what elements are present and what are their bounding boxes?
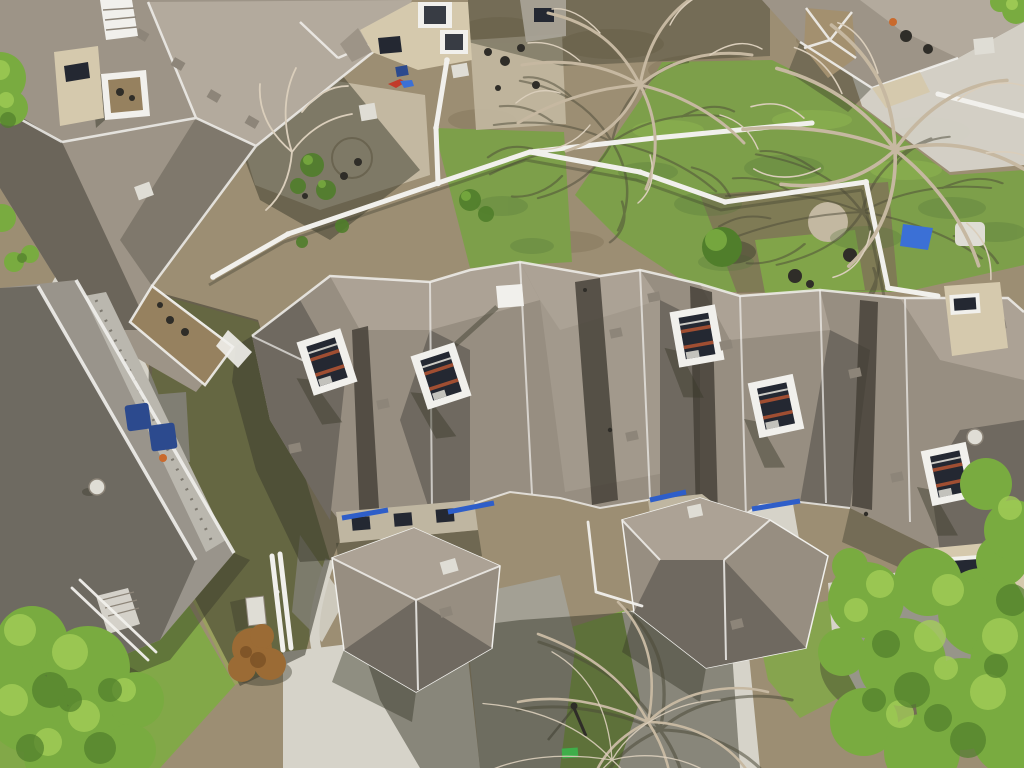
trash-bin-2 xyxy=(148,422,177,451)
stairs-top xyxy=(100,0,138,40)
dome-vent xyxy=(89,479,105,495)
utility-box xyxy=(246,596,267,626)
traffic-cone xyxy=(159,454,167,462)
white-vent-box xyxy=(496,284,524,308)
bay-window-1 xyxy=(418,2,452,28)
white-box-patio xyxy=(973,37,995,55)
round-vent xyxy=(967,429,983,445)
terracotta-pot xyxy=(889,18,897,26)
structure-top-center xyxy=(520,0,566,42)
blue-tarp xyxy=(900,224,933,250)
bay-window-2 xyxy=(440,30,468,54)
window-dark xyxy=(378,36,402,54)
wall-right-upper xyxy=(944,282,1008,356)
ac-unit-2 xyxy=(451,63,469,79)
ac-unit-1 xyxy=(359,103,378,122)
blue-box xyxy=(395,65,409,77)
wall-with-window xyxy=(54,46,104,126)
trash-bin-1 xyxy=(124,402,151,431)
evergreen-bush xyxy=(702,227,742,267)
aerial-photo xyxy=(0,0,1024,768)
